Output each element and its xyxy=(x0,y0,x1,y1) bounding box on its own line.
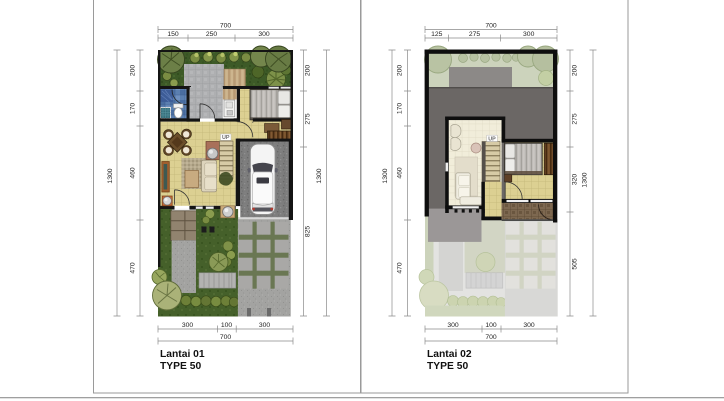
svg-text:125: 125 xyxy=(431,31,443,38)
svg-text:200: 200 xyxy=(397,65,404,77)
svg-text:250: 250 xyxy=(206,31,218,38)
svg-text:200: 200 xyxy=(305,65,312,77)
svg-text:825: 825 xyxy=(305,226,312,238)
svg-text:300: 300 xyxy=(258,31,270,38)
svg-text:700: 700 xyxy=(485,23,497,30)
svg-text:UP: UP xyxy=(488,136,496,142)
svg-text:170: 170 xyxy=(397,103,404,115)
svg-text:100: 100 xyxy=(485,322,497,329)
svg-text:275: 275 xyxy=(305,113,312,125)
svg-text:TYPE 50: TYPE 50 xyxy=(427,361,468,372)
svg-text:1300: 1300 xyxy=(316,168,323,183)
svg-text:300: 300 xyxy=(523,31,535,38)
svg-text:700: 700 xyxy=(220,23,232,30)
svg-text:Lantai 01: Lantai 01 xyxy=(160,349,205,360)
svg-text:1300: 1300 xyxy=(382,168,389,183)
svg-text:470: 470 xyxy=(397,262,404,274)
svg-text:505: 505 xyxy=(572,258,579,270)
svg-text:700: 700 xyxy=(485,334,497,341)
svg-text:100: 100 xyxy=(221,322,233,329)
svg-text:700: 700 xyxy=(220,334,232,341)
svg-text:460: 460 xyxy=(397,167,404,179)
svg-text:470: 470 xyxy=(130,262,137,274)
svg-text:275: 275 xyxy=(572,113,579,125)
svg-text:320: 320 xyxy=(572,174,579,186)
svg-text:150: 150 xyxy=(167,31,179,38)
svg-text:TYPE 50: TYPE 50 xyxy=(160,361,201,372)
svg-text:300: 300 xyxy=(182,322,194,329)
svg-text:300: 300 xyxy=(523,322,535,329)
svg-text:460: 460 xyxy=(130,167,137,179)
svg-text:1300: 1300 xyxy=(582,172,589,187)
svg-text:UP: UP xyxy=(222,135,230,141)
svg-text:170: 170 xyxy=(130,103,137,115)
svg-text:300: 300 xyxy=(447,322,459,329)
svg-text:200: 200 xyxy=(572,65,579,77)
svg-text:275: 275 xyxy=(469,31,481,38)
svg-text:Lantai 02: Lantai 02 xyxy=(427,349,472,360)
svg-text:300: 300 xyxy=(259,322,271,329)
svg-text:1300: 1300 xyxy=(107,168,114,183)
svg-text:200: 200 xyxy=(130,65,137,77)
